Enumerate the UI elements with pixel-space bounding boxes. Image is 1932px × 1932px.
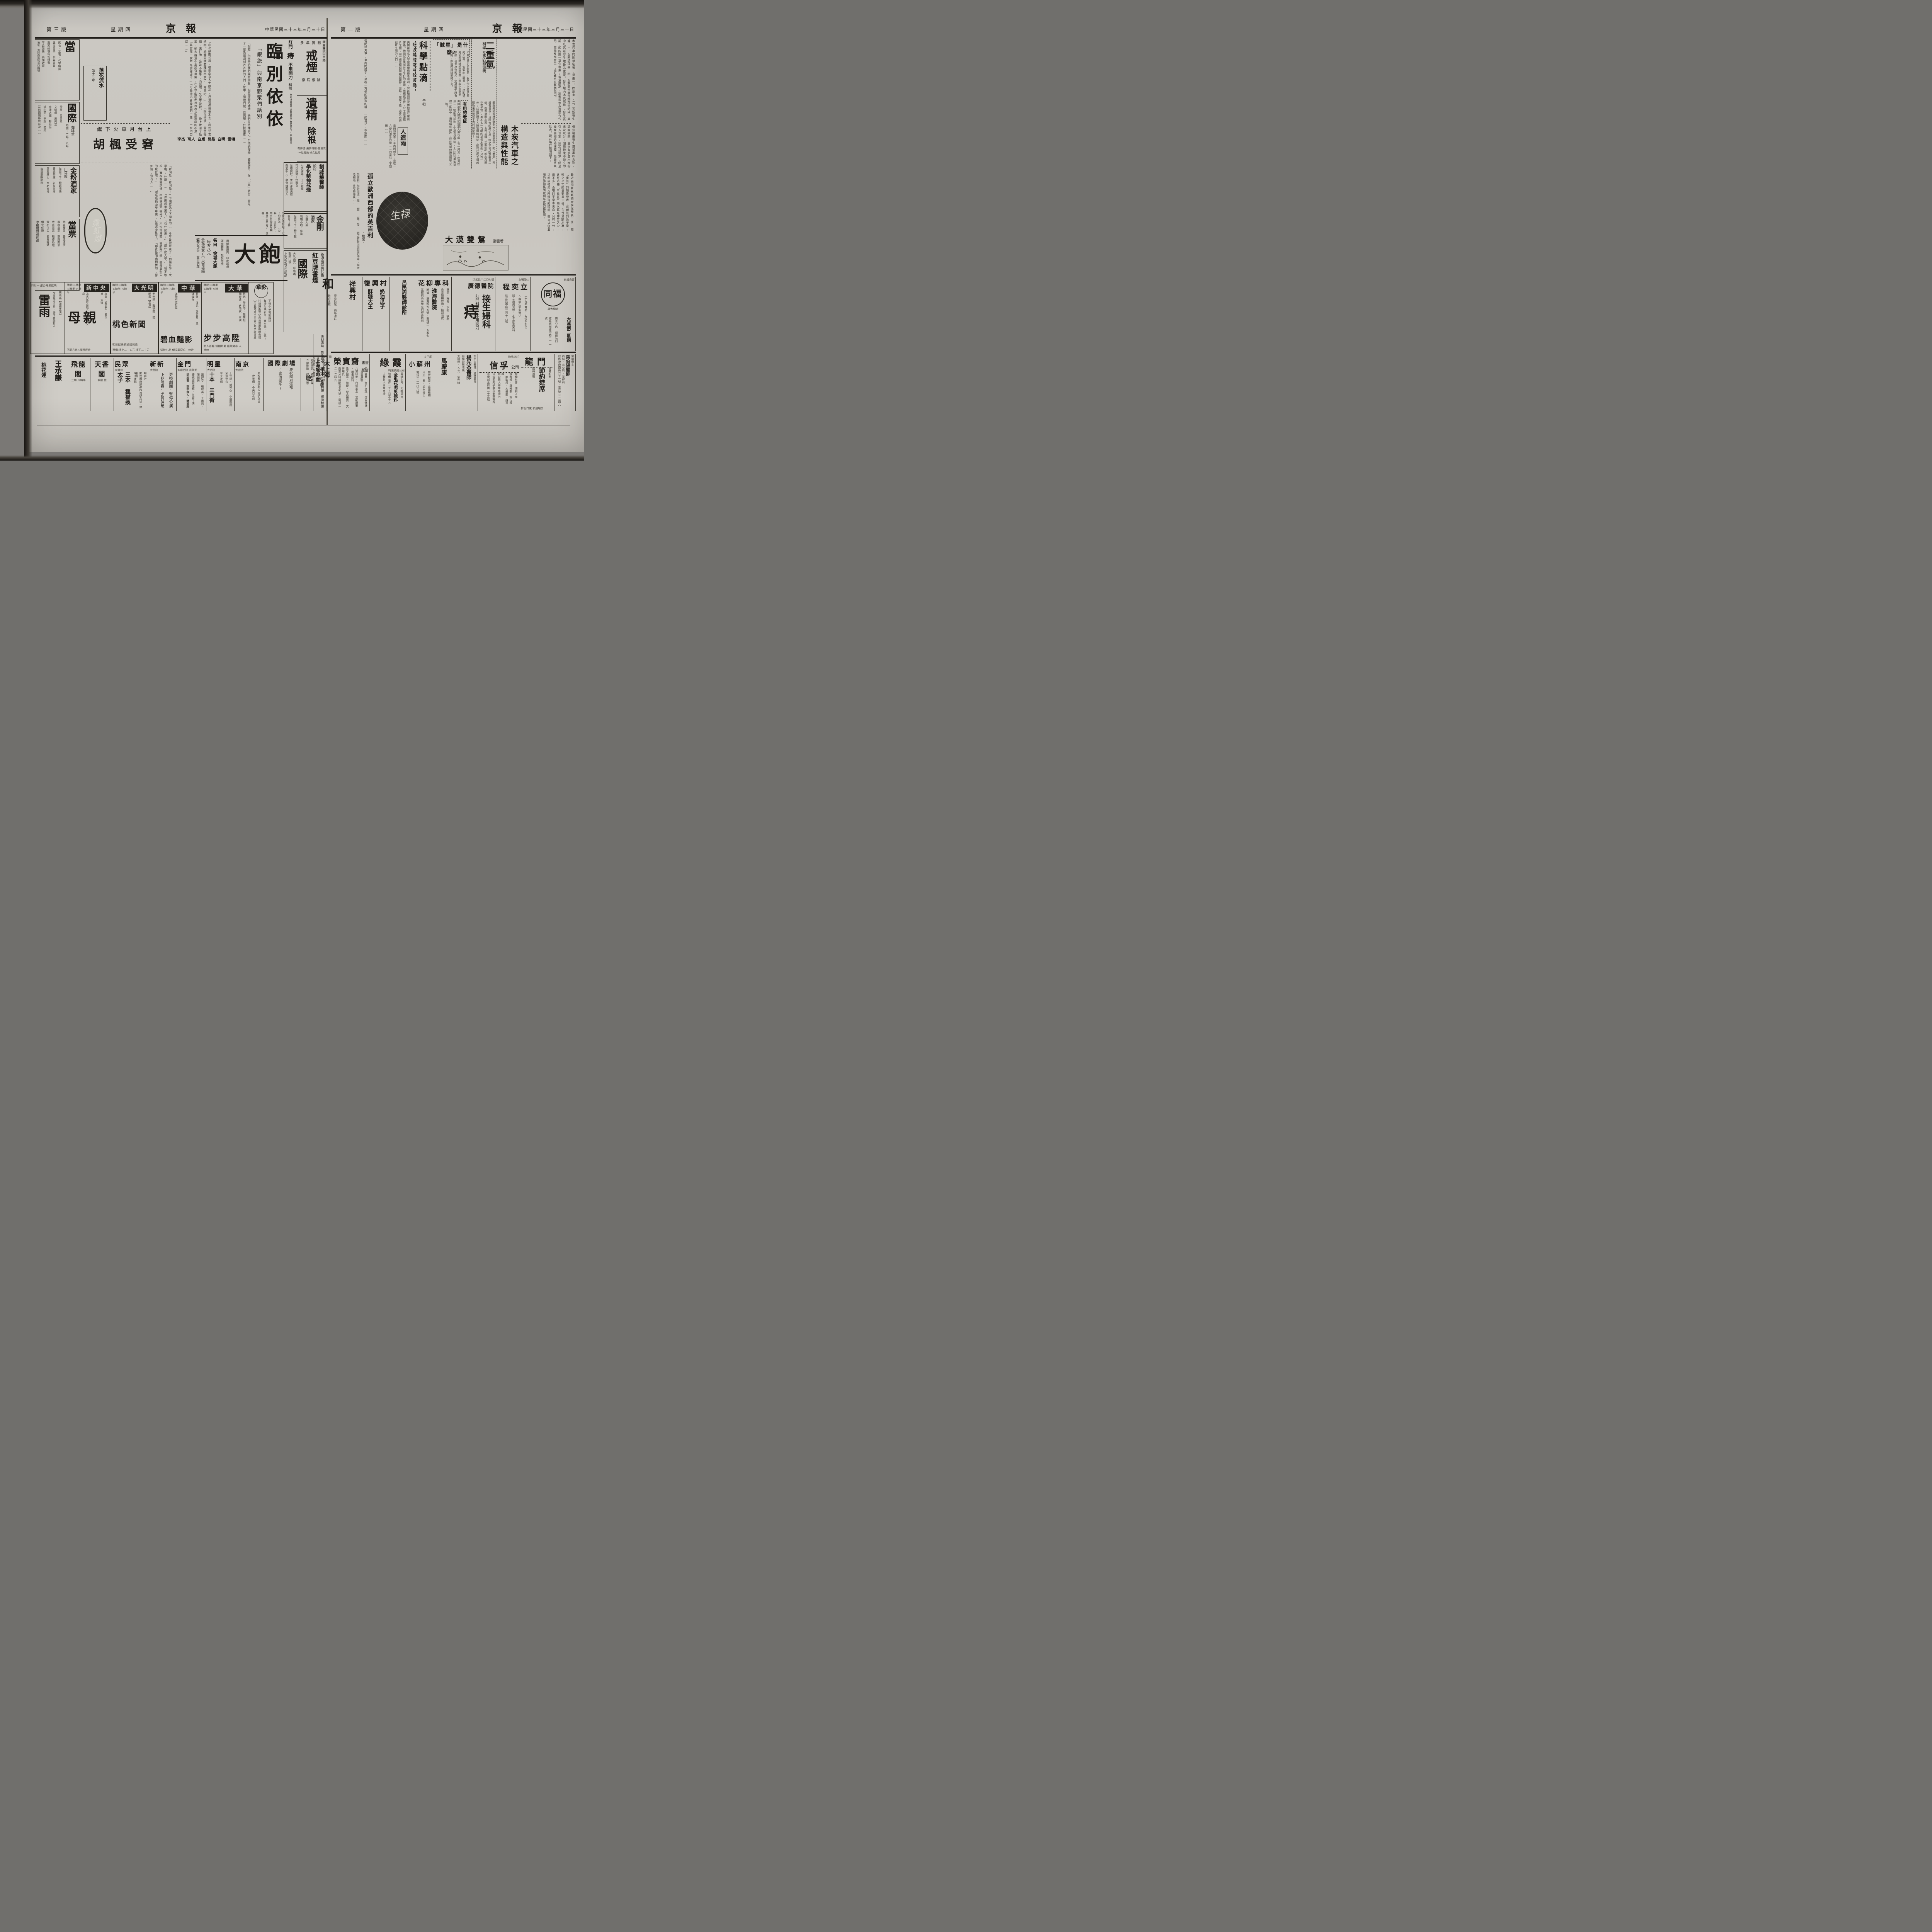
line-4: 不論新舊·高價收買 — [41, 41, 46, 98]
address: 地址:貢院西街靴巷口四號 — [36, 41, 40, 98]
line-2: 負責短期根治·精割包皮 — [440, 288, 445, 345]
byline: ·繼榮· — [361, 231, 366, 262]
cinema-name: 大華 — [225, 284, 248, 293]
company-name-row: 信孚 公司 — [479, 359, 519, 371]
dept: 設科 — [312, 164, 317, 187]
tagline: 窮人百雜·鴿棚拜弟·瘋院笑非·人皆啼 — [204, 344, 244, 352]
line-2: 酥糖大王 — [366, 289, 374, 343]
kicker: 物品信託 — [479, 355, 519, 359]
ad-title: 戒煙 — [305, 46, 319, 76]
cinema-name: 大光明 — [132, 284, 157, 292]
line-2: 不用開刀 — [288, 63, 293, 80]
cinema-dahua: 大華 時間:二時半·五時半·八時半 張帆·殷秀岑·韓蘭根·關宏達·倉隱秋 主演 … — [202, 282, 249, 354]
hours: 點心部份·全日供應 — [196, 240, 200, 277]
times: 時間:二時半·五時半·八時半 — [67, 283, 83, 295]
rule — [35, 355, 327, 357]
serial-title: 落花流水 — [97, 68, 105, 118]
line-4: 鑽石洋金·名貴鐘錶 — [46, 221, 50, 288]
line-4: 歌唱比賽 — [287, 215, 291, 246]
ad-guangde-hospital: 洪武路中二〇七號 廣德醫院 接生婦科 痔 肛門科病·不用開刀 — [452, 277, 495, 351]
ad-guoji-cafe: 國際 咖啡室 時間:二時·八時 滑稽 馬壽延 文明戲 謝芮芝 京津大鼓 聯幼茹 … — [35, 102, 80, 164]
body-1: 木炭汽車的附帶裝置,是由一、貯炭室,二、瓦斯發生爐,三、瓦斯清淨器,四、瓦斯混合… — [499, 39, 576, 121]
line-2: 南京分店 綢緞坊口 — [554, 317, 559, 348]
address: 電話二二一〇八號 — [416, 371, 420, 408]
ad-wangchengqian: 王承謙 桃花運 — [36, 358, 67, 411]
venue-name: 國際 — [64, 103, 78, 123]
ad-minzhong-theater: 民眾 大舞台 鳴春社 慶祝國府還都四週紀念日一律半價 今天夜戲 三本 狸猫換太子 — [114, 358, 149, 411]
page-left: 中華民國三十三年三月三十日 京報 星期四 第三版 廣東醫院中華路 多年實驗 戒煙… — [35, 20, 327, 425]
clinic-line: 廣東醫院中華路 — [322, 40, 326, 94]
line-2: (票價減半) — [278, 368, 282, 408]
stars: 尤光照·龔秋霞·陸明露【主演】 — [133, 293, 156, 320]
body: 最近美國普林斯頓大學化學系主任,把「重氫」的報告發表:這種氫的原子量,較之平常的… — [473, 101, 496, 166]
quote-3: 「其實那一家不是這樣呢?」「可是總不會像我們一樣,一家四口都……」 — [185, 40, 193, 136]
line-3: 專家修理各式鐘表 — [47, 41, 51, 98]
article-title: 木炭汽車之構造與性能 — [498, 125, 519, 168]
hufeng-headline-block: 纔下火車月台上 胡楓受窘 — [81, 123, 170, 163]
tongfu-logo: 同福 — [541, 282, 565, 306]
shop-name: 榮寶齋 — [333, 357, 360, 366]
address: 中華路大中華商場 — [382, 372, 386, 408]
line-2: 今天夜戲 — [133, 372, 138, 395]
line-4: ㈡決戰時期中日青少年勇猛訓練 — [253, 299, 257, 350]
line-2: 芥厘雞飯·經濟實惠 — [306, 359, 310, 409]
film-title: 碧血豔影 — [160, 334, 193, 344]
venue-sub: 三時·八時半 — [68, 378, 89, 382]
line-1: 每日下午二時起增設 — [58, 167, 63, 214]
hospital-name: 廣德醫院 — [452, 282, 494, 290]
line-3: ㈠總理逝世紀念日首都植樹典禮 — [258, 299, 262, 350]
doctor-name: 葉伯陽醫師 — [565, 355, 571, 409]
ad-xiaosuzhou: 夫子廟 小蘇州 茶食糖果·喜壽糕糰 只此一家·並無分出 電話二二一〇八號 — [406, 354, 433, 411]
line-2: 一律半價·今天日夜戲 — [252, 372, 256, 409]
slogan: 學化精神戒煙 — [305, 164, 312, 210]
theater-name: 民眾 — [115, 359, 148, 368]
line-2: 每場加映新聞(第七號·六號) — [263, 299, 267, 350]
column-title: 科學點滴 — [415, 41, 430, 91]
body: 如果在晴朗的夜裏,我們佇立於多星的天空下,仰頭向上觀望……然的遇見包圍地球的空氣… — [434, 51, 470, 97]
ad-doctor-yang: 前中央醫院·鼓樓醫院 楊光杰醫師 鼓樓診所增設 太陽燈·X光·紫外線 — [452, 354, 478, 411]
line-1: 用鮮嫩雞肉·印度喀喱 — [226, 240, 230, 277]
times: 時間:二時半·五時半·八時半 — [204, 283, 221, 295]
ad-feilong-pavilion: 飛龍閣 三時·八時半 — [67, 358, 90, 411]
line-1: 內科·小兒科·花柳科 — [561, 355, 566, 409]
troupe: 鳴春社 — [143, 372, 148, 409]
feature-title: 臨別依依 — [260, 43, 285, 205]
line-1: 茶食糖果·喜壽糕糰 — [427, 371, 432, 408]
mouse-body: 美國加拿大附近亞喂那大瀑布處,有一河流,在河底通……牠拖曳前進,中途老鼠食玩,工… — [434, 100, 461, 168]
gutter-text-column: 電閃坦克車,車內的射手,坐在一方便的游泳的機……的當兒,不期而…… — [331, 39, 368, 168]
line-1: 今天夜戲 — [219, 372, 224, 395]
ad-jingang-restaurant: 金剛 酒家 京蘇大菜 石瑛小唱·伴奏 每日下午二時半起 歌唱比賽 — [284, 213, 327, 249]
film-title: 母親 — [68, 307, 99, 326]
ad-longmen-banquet: 龍門 設備新型 節約筵席 招待週到 新街口東·和劇場前 — [520, 354, 554, 411]
line-1: 慶祝國府還都·茶資半價 — [191, 373, 196, 409]
venue-name: 飛龍閣 — [68, 359, 89, 378]
rule — [331, 352, 576, 353]
line-2: 專收當票·代客賣買 — [52, 41, 56, 98]
ad-title: 當票 — [65, 221, 78, 255]
ad-fuxingcun: 復興村 奶油瓜子 酥糖大王 — [362, 277, 390, 351]
name-1: 白明 — [218, 136, 225, 146]
line-3: 代客買賣·精修各種 — [51, 221, 56, 288]
address: 地址:淮海路九五號·電話二一五五七 — [426, 288, 430, 345]
line-1: 服務社會·便利人羣 — [514, 372, 519, 407]
venue-name: 龍門 — [521, 355, 553, 368]
line-2: 全毛花呢男袍料 — [392, 372, 398, 408]
article-heavy-hydrogen: 科學元素的新發現 二重氫 最近美國普林斯頓大學化學系主任,把「重氫」的報告發表:… — [471, 39, 497, 168]
line-1: 適合經濟需要 — [316, 357, 320, 407]
left-scan-edge — [24, 0, 32, 461]
filler-text: 怎麼的情形吧,以下的事怎……尖兵……朋友們,南京是後會有期,甚麼天點去了,還甚…… — [197, 212, 285, 235]
doctor-name: 程奕立 — [496, 282, 529, 292]
mid-ads-row: 自織自賣 同福 專售綢緞 大減價二星期 南京分店 綢緞坊口 建廠杭州皮市巷二一二… — [331, 277, 576, 351]
line-3: 每日下午二時半起 — [293, 215, 298, 246]
ad-intl-theater: 國際劇場 慶祝國府還都 (票價減半) — [264, 358, 301, 411]
line-2: 只此一家·並無分出 — [422, 371, 426, 408]
line-2: 大乳白式·彩色嘴 — [293, 252, 297, 328]
ad-maqingkang: 馬慶康 — [433, 354, 452, 411]
rain-title: 人造雨 — [398, 128, 408, 155]
line-2: 頭號麵粉·配製而成 — [220, 240, 224, 277]
theater-name: 金門 — [177, 359, 205, 368]
note: 當都的高尚仕女們都喜歡到 — [420, 288, 425, 345]
ad-dashanghai-restaurant: 夫子廟 大上海 西餐廳 適合經濟需要 又便宜,又實惠 — [311, 354, 332, 411]
line-3: 特價每件一千五百五十元 — [388, 372, 392, 408]
address: 新街口東·和劇場前 — [521, 406, 543, 410]
line-2: 歡迎比較 — [327, 294, 332, 345]
logo-sub: 專售綢緞 — [531, 307, 575, 311]
calligraphy-photo-inset: 生禄 — [376, 192, 428, 250]
kicker: 四月一日起·電影獻映 — [31, 284, 61, 287]
venue-name: 天香閣 — [91, 359, 113, 378]
ad-nanjing-theater: 南京 大戲院 慶祝國府還都四週紀念日 一律半價·今天日夜戲 — [235, 358, 264, 411]
stars: 張靜·浦克·張奕聰 主演傑作 — [180, 293, 199, 326]
body: 美國羅特格大學昆蟲學教授希德利,曾試驗用短波無線電以屠殺害蟲。他把試管裏面放了半… — [374, 41, 410, 122]
line-2: △專醫久不生育▽ — [518, 294, 522, 345]
feature-intro: 「銀旅」內來帶給我們幾許興奮;但是那麼迅速地,他們又將離去了。乍晴的夜晚,披着新… — [206, 42, 251, 206]
line-1: 更換劇團·暫停公演 — [167, 372, 173, 409]
page-number: 第三版 — [46, 26, 68, 33]
kicker: 洪武路中二〇七號 — [452, 278, 494, 282]
line-2: 又便宜,又實惠 — [312, 357, 316, 407]
ad-doctor-lv: 呂民周醫師診所 — [390, 277, 414, 351]
ad-quit-smoking: 廣東醫院中華路 多年實驗 戒煙 徹底根除 — [297, 39, 327, 96]
detail-2: 可以照常工作進食 — [295, 164, 299, 210]
rain-body: 電閃坦克車,車內的射手,坐在一方便的游泳的機……的當兒,不期而…… — [375, 124, 396, 169]
line-1: 代客贖當·路遠通信 — [62, 221, 66, 288]
page-right: 中華民國三十三年三月三十日 京報 星期四 第二版 木炭汽車的附帶裝置,是由一、貯… — [331, 20, 576, 425]
kicker: 花柳專科 — [415, 278, 451, 287]
ad-huaihai-hospital: 花柳專科 淋病·梅毒·下疳·橫痃 負責短期根治·精割包皮 淮海醫院 地址:淮海路… — [414, 277, 452, 351]
ad-spermatorrhea: 遺精 除根 有夢遺·無夢滑精·色淺流·一貼見效·永久貼除 — [297, 97, 327, 162]
slogan: 節約筵席 — [536, 367, 546, 407]
times: 時間:二時·八時 — [65, 124, 70, 161]
act-4: 姚少英·皇后·美英 — [43, 105, 47, 161]
detail-4: 費五千元·宿食雜費每人 — [285, 164, 289, 210]
line-1: 設備新型 — [548, 367, 552, 406]
novel-illustration — [443, 245, 509, 270]
restaurant-name: 金粉酒家 — [68, 167, 78, 214]
rule — [195, 280, 287, 281]
shop-sub: 時裝綢緞公司 — [371, 369, 405, 372]
ad-title: 遺精 — [305, 97, 319, 127]
line-3: 廣東點心·西點咖啡 — [46, 167, 50, 214]
ad-tongfu-silk: 自織自賣 同福 專售綢緞 大減價二星期 南京分店 綢緞坊口 建廠杭州皮市巷二一二… — [531, 277, 576, 351]
brand-name: 國際 — [295, 259, 310, 305]
ad-doctor-cheng: 女醫學士 程奕立 二十九年實驗·有快孕新法 △專醫久不生育▽ 婦女痼病流帶·老手… — [495, 277, 531, 351]
article-england: 孤立歐洲西部的英吉利 ·繼榮· 英吉利三部分而成,總……顛……英、愛……孤立於歐… — [331, 173, 374, 273]
address: 南京分店延齡巷五九號·電話二二一二四九 — [333, 367, 342, 408]
address: 診所遊府西街六十一號·電話二二三四八 — [558, 355, 562, 409]
act-5: 琵琶四胡絲絃以及…… — [37, 105, 42, 161]
ad-pawnshop-1: 當 舊衣·當表·代客購當 專收當票·代客賣買 專家修理各式鐘表 不論新舊·高價收… — [35, 39, 80, 100]
next-show: 明日獻映:費貞娥刺虎 — [112, 343, 154, 347]
tagline: 不同凡俗◇倫理巨片 — [67, 348, 106, 352]
huaying-logo: 華影 — [254, 284, 268, 298]
torn-top-edge — [0, 0, 584, 9]
line-1: 淋病·梅毒·下疳·橫痃 — [446, 288, 450, 345]
article-text-block: 「此次敝團公演,很受南京人士歡迎,真使我們過意不去,我們非常感謝。過幾天就要離開… — [109, 40, 212, 136]
article-title: 二重氫 — [482, 41, 496, 99]
shop-name: 復興村 — [363, 278, 389, 287]
name-5: 李杰 — [177, 136, 185, 146]
price: 每客八元 — [205, 240, 211, 277]
line-3: 科病 — [288, 83, 292, 90]
body-2: 但這種由發生爐發出的瓦斯,溫度極高,並含有多量木炭粉末及灰分;固體粉末不能立即引… — [526, 125, 576, 168]
line-2: 招待週到 — [532, 367, 536, 406]
ad-rongbaozhai: 榮寶齋 書畫紙店 名人書畫·金石文玩·仿古詩牋·喜壽屏聯 八寶印泥·白銅墨盒·宣… — [332, 354, 370, 411]
weekday-label: 星期四 — [424, 26, 446, 33]
tagline: 故事離奇曲折·感情哀豔動人 — [43, 292, 56, 346]
neon-signature-oval: 霓虹燈 — [84, 208, 107, 253]
play-title: 三本 狸猫換太子 — [116, 372, 132, 409]
line-1: 下列中華電影四院 — [268, 299, 272, 350]
article-title: 孤立歐洲西部的英吉利 — [366, 173, 374, 270]
ad-xinfu-trust: 物品信託 信孚 公司 服務社會·便利人羣 鐘表部·鑽戒部·古玩部·服裝部·木器部… — [478, 354, 520, 411]
paper-crease — [37, 425, 570, 426]
handwritten-title: 霓虹燈 — [88, 218, 102, 243]
novel-author: 劉雲若 — [493, 239, 503, 243]
col-1: 名人書畫·金石文玩·仿古詩牋·喜壽屏聯 — [360, 367, 368, 408]
clinic-name: 呂民周醫師診所 — [400, 280, 408, 345]
name-3: 白嵐 — [197, 136, 205, 146]
novel-title: 大漠雙鴛 — [445, 236, 488, 244]
line-2: 音樂茶座·新型茶座 — [52, 167, 56, 214]
cinema-ads-row: 華影 下列中華電影四院 每場加映新聞(第七號·六號) ㈠總理逝世紀念日首都植樹典… — [41, 282, 274, 354]
ad-xiangxingcun: 祥興村 — [340, 277, 362, 351]
ad-xinxin-theater: 新新 大戲院 更換劇團·暫停公演 下期陣容·尤其彈硬 — [149, 358, 177, 411]
ad-jinfen-restaurant: 金粉酒家 川菜館 每日下午二時起增設 音樂茶座·新型茶座 廣東點心·西點咖啡 每… — [35, 165, 80, 217]
newspaper-scan: 中華民國三十三年三月三十日 京報 星期四 第三版 廣東醫院中華路 多年實驗 戒煙… — [0, 0, 584, 461]
act-3: 京津大鼓 聯幼茹 — [48, 105, 53, 161]
col-3: 象牙圖章·端硯·紀念冊頁·文房用具 — [341, 367, 349, 408]
ad-subtitle: 除根 — [306, 127, 317, 147]
interviewee-names: 雷鳴 白明 呂晶 白嵐 可人 李杰 — [175, 136, 236, 146]
restaurant-name: 金剛 — [314, 215, 325, 246]
restaurant-name: 大上海 — [323, 360, 331, 407]
product-name: 名曰 金城大飽 — [212, 238, 218, 277]
ad-doctor-ye: 醫學博士 葉伯陽醫師 內科·小兒科·花柳科 診所遊府西街六十一號·電話二二三四八 — [554, 354, 576, 411]
restaurant-sub: 西餐廳 — [320, 377, 324, 407]
theater-ads-row: 如欲更換口味請到 上海咖啡室 吃 名師烹調·標準西菜 芥厘雞飯·經濟實惠 國際劇… — [35, 358, 327, 411]
byline: 子袒 — [422, 99, 427, 118]
person-name: 王承謙 — [53, 360, 63, 406]
kicker: 夫子廟 — [406, 355, 432, 359]
body: 英吉利三部分而成,總……顛……英、愛……孤立於歐洲西部的海中,與大陸相隔一狹窄的… — [332, 173, 360, 270]
line-2: 專收當票·到府面洽 — [57, 221, 61, 288]
serial-novel-box: 落花流水 第十三章 — [83, 66, 107, 121]
line-1: 二十九年實驗·有快孕新法 — [524, 294, 528, 345]
ad-lvxia-fashion: 綠霞 時裝綢緞公司 最近上海·大批運到 全毛花呢男袍料 特價每件一千五百五十元 … — [370, 354, 406, 411]
hospital-name: 淮海醫院 — [430, 288, 438, 345]
restaurant-sub: 川菜館 — [63, 167, 68, 214]
line-5: 佣金低廉 — [41, 221, 45, 263]
company-name: 信孚 — [490, 361, 510, 371]
ad-tianxiang-pavilion: 天香閣 茶廳·戲 — [90, 358, 114, 411]
stars: 王少樓·劉琴心·小劉鳳霞 全班登台 — [225, 372, 233, 409]
shop-name: 李維鐘錶修理處 — [36, 221, 40, 288]
cinema-xinzhongyang: 新中央 時間:二時半·五時半·八時半 梅熹·顧蘭君·呂玉堃 主演 為求家庭幸福◇… — [65, 282, 111, 354]
address: 洪武路中段一百十八號 — [505, 294, 509, 345]
price: 票價:樓上二十五元·樓下二十元 — [112, 348, 154, 352]
page-left-header: 中華民國三十三年三月三十日 京報 星期四 第三版 — [35, 20, 327, 39]
stars: 蕭迎春·張蝶英·王鳳岩·張麗葵 — [197, 373, 204, 409]
tagline: 滿映出品·偵探離奇唯一佳片 — [160, 348, 197, 352]
kicker: 滿映四大紅星 — [174, 293, 178, 323]
cinema-zhonghua: 中華 時間:二時半·五時半·八時半 張靜·浦克·張奕聰 主演傑作 滿映四大紅星 … — [158, 282, 202, 354]
theater-sub: 大戲院 — [150, 368, 175, 372]
kicker: 自織自賣 — [531, 278, 575, 282]
line-4: 每日更換節目 — [40, 167, 44, 214]
line-1: 慶祝國府還都 — [289, 368, 293, 408]
cinema-daguangming: 大光明 時間:二時半·五時半·八時半 尤光照·龔秋霞·陸明露【主演】 桃色新聞 … — [111, 282, 158, 354]
plays: 捉放曹·空中飛人·鰻首庵 — [186, 373, 190, 409]
times: 時間:二時半·五時半·八時半 — [112, 283, 129, 295]
ad-dabao: 大飽 用鮮嫩雞肉·印度喀喱 頭號麵粉·配製而成 名曰 金城大飽 每客八元 金城酒… — [196, 237, 287, 279]
theater-name: 明星 — [207, 359, 233, 368]
theater-name: 新新 — [150, 359, 175, 368]
line-3: 分公司夫子廟永安商場內 — [492, 372, 496, 407]
doctor-name: 劉威華醫師 — [318, 164, 325, 210]
ad-he-shop: 和 春季時髦·高等洋莊 歡迎比較 — [317, 277, 340, 351]
big-char: 痔 — [286, 52, 294, 59]
line-4: 貨棧部王府園二十五號 — [486, 372, 491, 407]
shop-name: 和 — [318, 278, 335, 289]
kicker: 前中央醫院·鼓樓醫院 — [473, 355, 477, 409]
item-title: 短波無線電可殺害蟲 — [411, 43, 417, 108]
title: 桃花運 — [40, 362, 47, 405]
ad-pawnshop-2: 當票 代客贖當·路遠通信 專收當票·到府面洽 代客買賣·精修各種 鑽石洋金·名貴… — [35, 219, 80, 291]
shop-name: 祥興村 — [347, 281, 357, 342]
theater-name: 南京 — [235, 359, 262, 368]
farewell-feature: 臨別依依 「銀旅」與南京觀眾們話別 「銀旅」內來帶給我們幾許興奮;但是那麼迅速地… — [205, 40, 285, 208]
name-4: 可人 — [187, 136, 195, 146]
company-sub: 公司 — [511, 366, 519, 370]
line-2: 太陽燈·X光·紫外線 — [457, 355, 461, 409]
name-0: 雷鳴 — [228, 136, 235, 146]
detail-1: 七天滿毒·十天斷癮 — [300, 164, 304, 210]
page-number: 第二版 — [340, 26, 362, 33]
cinema-name: 中華 — [178, 284, 201, 293]
rule — [331, 274, 576, 276]
line-2: 總公司大中華商場內 — [497, 372, 502, 407]
rule — [195, 235, 287, 236]
film-title: 桃色新聞 — [112, 318, 146, 329]
line-1: 鼓樓診所增設 — [461, 355, 466, 409]
feature-subtitle: 「銀旅」與南京觀眾們話別 — [255, 46, 263, 200]
venue-sub: 茶廳·戲 — [91, 378, 113, 382]
line-1: 京蘇大菜 — [305, 215, 309, 246]
ad-doctor-liu: 劉威華醫師 設科 學化精神戒煙 七天滿毒·十天斷癮 可以照常工作進食 每夜安眠·… — [284, 162, 327, 212]
act-2: 文明戲 謝芮芝 — [54, 105, 58, 161]
mouse-title: 有用的老鼠 — [461, 100, 468, 132]
page-right-header: 中華民國三十三年三月三十日 京報 星期四 第二版 — [331, 20, 576, 39]
line-1: 最近上海·大批運到 — [400, 372, 404, 408]
stars: 陳燕燕【領銜主演】 — [58, 291, 63, 326]
novel-title-block: 大漠雙鴛 劉雲若 — [445, 233, 503, 245]
line-1: 接生婦科 — [480, 294, 492, 345]
line-2: 下期陣容·尤其彈硬 — [159, 372, 165, 409]
shop-name: 綠霞 — [371, 355, 405, 369]
serial-chapter: 第十三章 — [91, 69, 95, 116]
theater-name: 國際劇場 — [264, 359, 300, 367]
date-line: 中華民國三十三年三月三十日 — [265, 26, 325, 32]
ad-title: 大飽 — [234, 237, 284, 269]
science-drops-column: 科學點滴 子袒 短波無線電可殺害蟲 美國羅特格大學昆蟲學教授希德利,曾試驗用短波… — [373, 41, 431, 168]
line-1: 春季時髦·高等洋莊 — [333, 294, 338, 345]
detail-3: 每夜安眠·並可兼治病症 — [289, 164, 294, 210]
line-1: 慶祝國府還都四週紀念日 — [257, 372, 261, 409]
shop-name: 馬慶康 — [440, 358, 448, 407]
restaurant-sub: 酒家 — [309, 215, 315, 246]
departments: 鐘表部·鑽戒部·古玩部·服裝部·木器部·雜件部 — [503, 372, 513, 407]
line-3: 婦女痼病流帶·老手接生兒科 — [512, 294, 516, 345]
line-3: 歡迎比較 — [288, 252, 292, 299]
masthead: 京報 — [156, 21, 206, 35]
cinema-huaying: 華影 下列中華電影四院 每場加映新聞(第七號·六號) ㈠總理逝世紀念日首都植樹典… — [249, 282, 274, 354]
film-title: 步步高陞 — [204, 332, 241, 344]
article-charcoal-car: 木炭汽車的附帶裝置,是由一、貯炭室,二、瓦斯發生爐,三、瓦斯清淨器,四、瓦斯混合… — [498, 39, 576, 168]
line-1: 奶油瓜子 — [378, 289, 386, 343]
inset-script: 生禄 — [389, 206, 411, 223]
doctor-name: 楊光杰醫師 — [465, 355, 472, 409]
bottom-scan-edge — [0, 455, 584, 461]
ad-mingxing-theater: 明星 大戲院 王少樓·劉琴心·小劉鳳霞 全班登台 今天夜戲 十本 三門街 — [206, 358, 235, 411]
kicker: 女醫學士 — [496, 278, 529, 282]
play-title: 十本 三門街 — [208, 372, 215, 409]
cinema-name: 新中央 — [84, 284, 109, 292]
line-3: 建廠杭州皮市巷二一二號 — [544, 317, 552, 348]
kicker: 纔下火車月台上 — [83, 125, 168, 133]
article-thief-star: 「賊星」是什麼? 如果在晴朗的夜裏,我們佇立於多星的天空下,仰頭向上觀望……然的… — [433, 39, 470, 168]
theater-sub: 茶廳戲院·貢院街 — [177, 368, 205, 372]
headline: 胡楓受窘 — [83, 135, 168, 152]
times: 時間:二時半·五時半·八時半 — [160, 283, 176, 295]
act-1: 滑稽 馬壽延 — [59, 105, 63, 161]
big-char: 當 — [60, 41, 77, 52]
name-2: 呂晶 — [207, 136, 215, 146]
line-2: 肛門科病·不用開刀 — [474, 294, 480, 345]
line-1: 大減價二星期 — [565, 317, 571, 348]
venue-sub: 咖啡室 — [70, 126, 75, 160]
novel-text: 最近美國普林斯頓大學化學系主任,把「重氫」的報告發表:這種氫的原子量,較之平常的… — [432, 173, 574, 231]
cinema-guomin: 四月一日起·電影獻映 陳燕燕【領銜主演】 雷雨 故事離奇曲折·感情哀豔動人 — [30, 282, 65, 354]
novel-section: 最近美國普林斯頓大學化學系主任,把「重氫」的報告發表:這種氫的原子量,較之平常的… — [431, 173, 574, 273]
address: 京衛府路西口遠東藥房下首設診所·中央商場 — [289, 94, 292, 144]
kicker: 醫學博士 — [571, 355, 575, 409]
stars: 張帆·殷秀岑·韓蘭根·關宏達·倉隱秋 主演 — [223, 293, 246, 327]
